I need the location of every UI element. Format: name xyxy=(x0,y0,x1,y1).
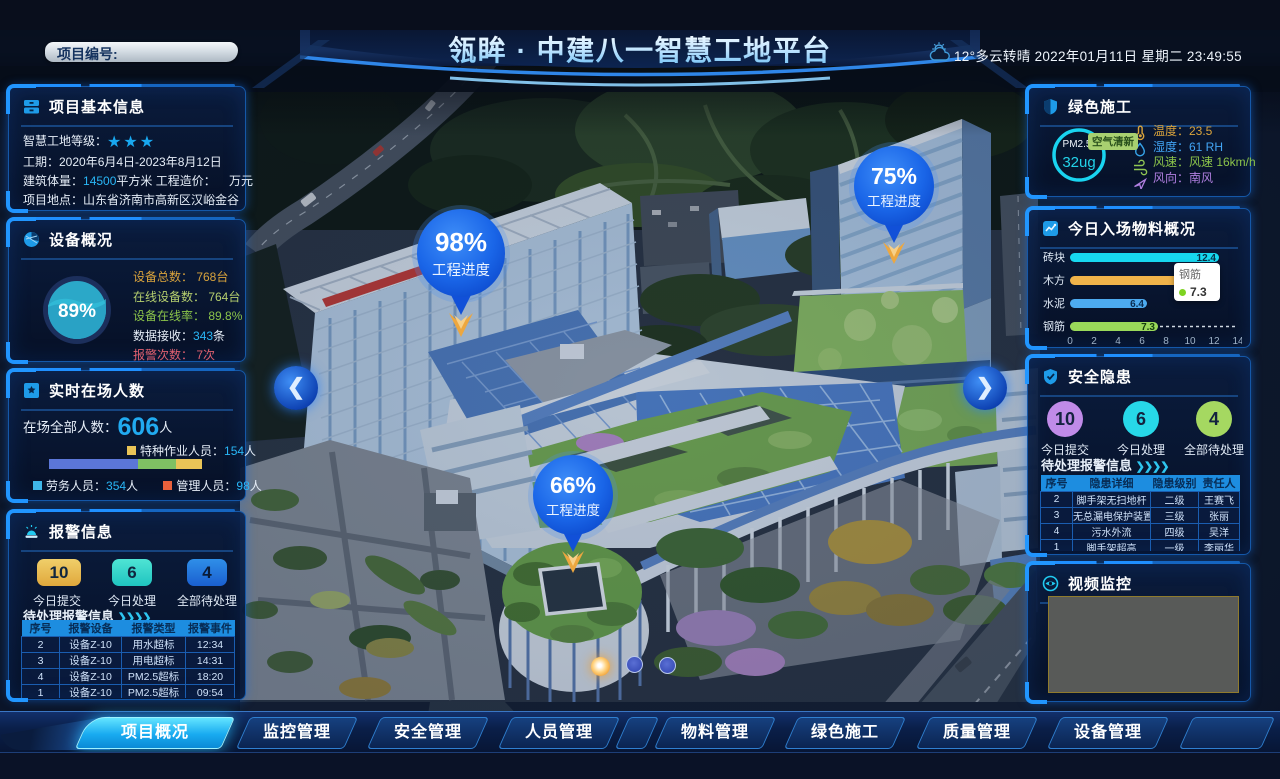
svg-text:7.3: 7.3 xyxy=(1141,322,1155,333)
svg-text:8: 8 xyxy=(1163,336,1169,345)
svg-text:工程进度: 工程进度 xyxy=(867,194,921,209)
svg-text:98%: 98% xyxy=(435,227,487,257)
svg-text:工程进度: 工程进度 xyxy=(546,503,600,518)
svg-text:木方: 木方 xyxy=(1043,273,1065,287)
svg-text:14: 14 xyxy=(1232,336,1242,345)
svg-text:工程进度: 工程进度 xyxy=(432,262,490,279)
svg-text:6: 6 xyxy=(1139,336,1145,345)
svg-text:水泥: 水泥 xyxy=(1043,297,1065,310)
svg-text:10: 10 xyxy=(1184,336,1196,345)
svg-text:钢筋: 钢筋 xyxy=(1043,319,1065,333)
svg-text:89%: 89% xyxy=(58,301,96,322)
svg-text:75%: 75% xyxy=(871,163,917,189)
svg-text:66%: 66% xyxy=(550,472,596,498)
svg-text:2: 2 xyxy=(1091,336,1097,345)
svg-text:0: 0 xyxy=(1067,336,1073,345)
svg-text:4: 4 xyxy=(1115,336,1121,345)
svg-text:砖块: 砖块 xyxy=(1043,251,1065,264)
svg-text:6.4: 6.4 xyxy=(1130,299,1144,310)
svg-text:32ug: 32ug xyxy=(1062,154,1095,171)
svg-text:瓴眸 · 中建八一智慧工地平台: 瓴眸 · 中建八一智慧工地平台 xyxy=(448,34,831,66)
svg-text:12: 12 xyxy=(1208,336,1220,345)
